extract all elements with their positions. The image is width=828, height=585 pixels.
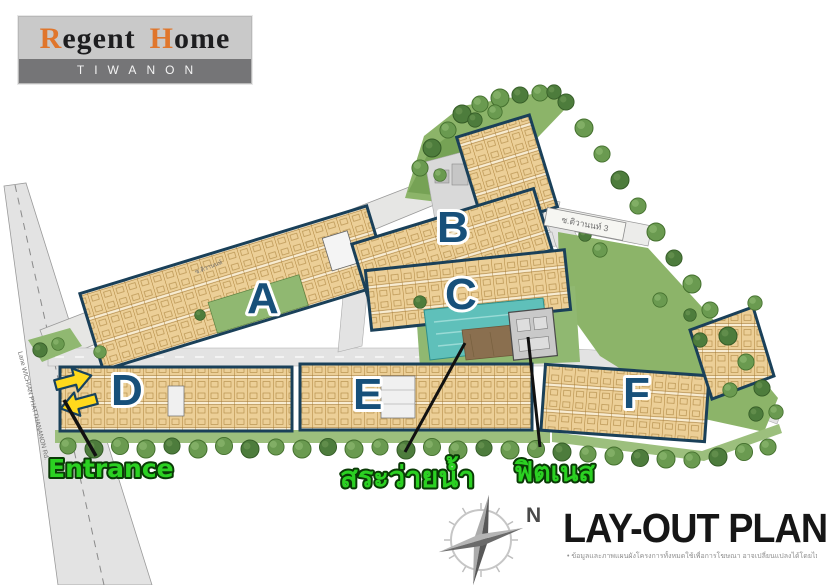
building-f-label: F <box>623 369 650 418</box>
layout-plan-page: N Lane WICHIAN PHATTHANANON Rd. ซ.ติวานน… <box>0 0 828 585</box>
north-label: N <box>526 504 541 527</box>
building-e-label: E <box>353 370 382 419</box>
disclaimer-text: • ข้อมูลและภาพแผนผังโครงการทั้งหมดใช้เพื… <box>567 551 817 562</box>
compass-rose <box>437 493 525 585</box>
building-d-label: D <box>111 366 143 415</box>
brand-initial-h: H <box>150 22 174 55</box>
entrance-label: Entrance <box>48 454 174 483</box>
fitness-building <box>509 308 558 360</box>
brand-initial-r: R <box>40 22 63 55</box>
building-c-label: C <box>445 270 477 319</box>
brand-name: RegentHome <box>19 17 251 59</box>
brand-rest-1: egent <box>62 22 135 55</box>
building-a-label: A <box>247 274 279 323</box>
brand-rest-2: ome <box>174 22 230 55</box>
layout-plan-title: LAY-OUT PLAN <box>563 505 827 552</box>
building-b-label: B <box>437 203 469 252</box>
brand-logo: RegentHome TIWANON <box>18 16 252 84</box>
fitness-label: ฟิตเนส <box>514 457 595 488</box>
pool-label: สระว่ายน้ำ <box>340 455 475 494</box>
building-e <box>300 364 532 430</box>
brand-subtitle: TIWANON <box>19 59 251 83</box>
site-plan: N Lane WICHIAN PHATTHANANON Rd. ซ.ติวานน… <box>0 0 828 585</box>
